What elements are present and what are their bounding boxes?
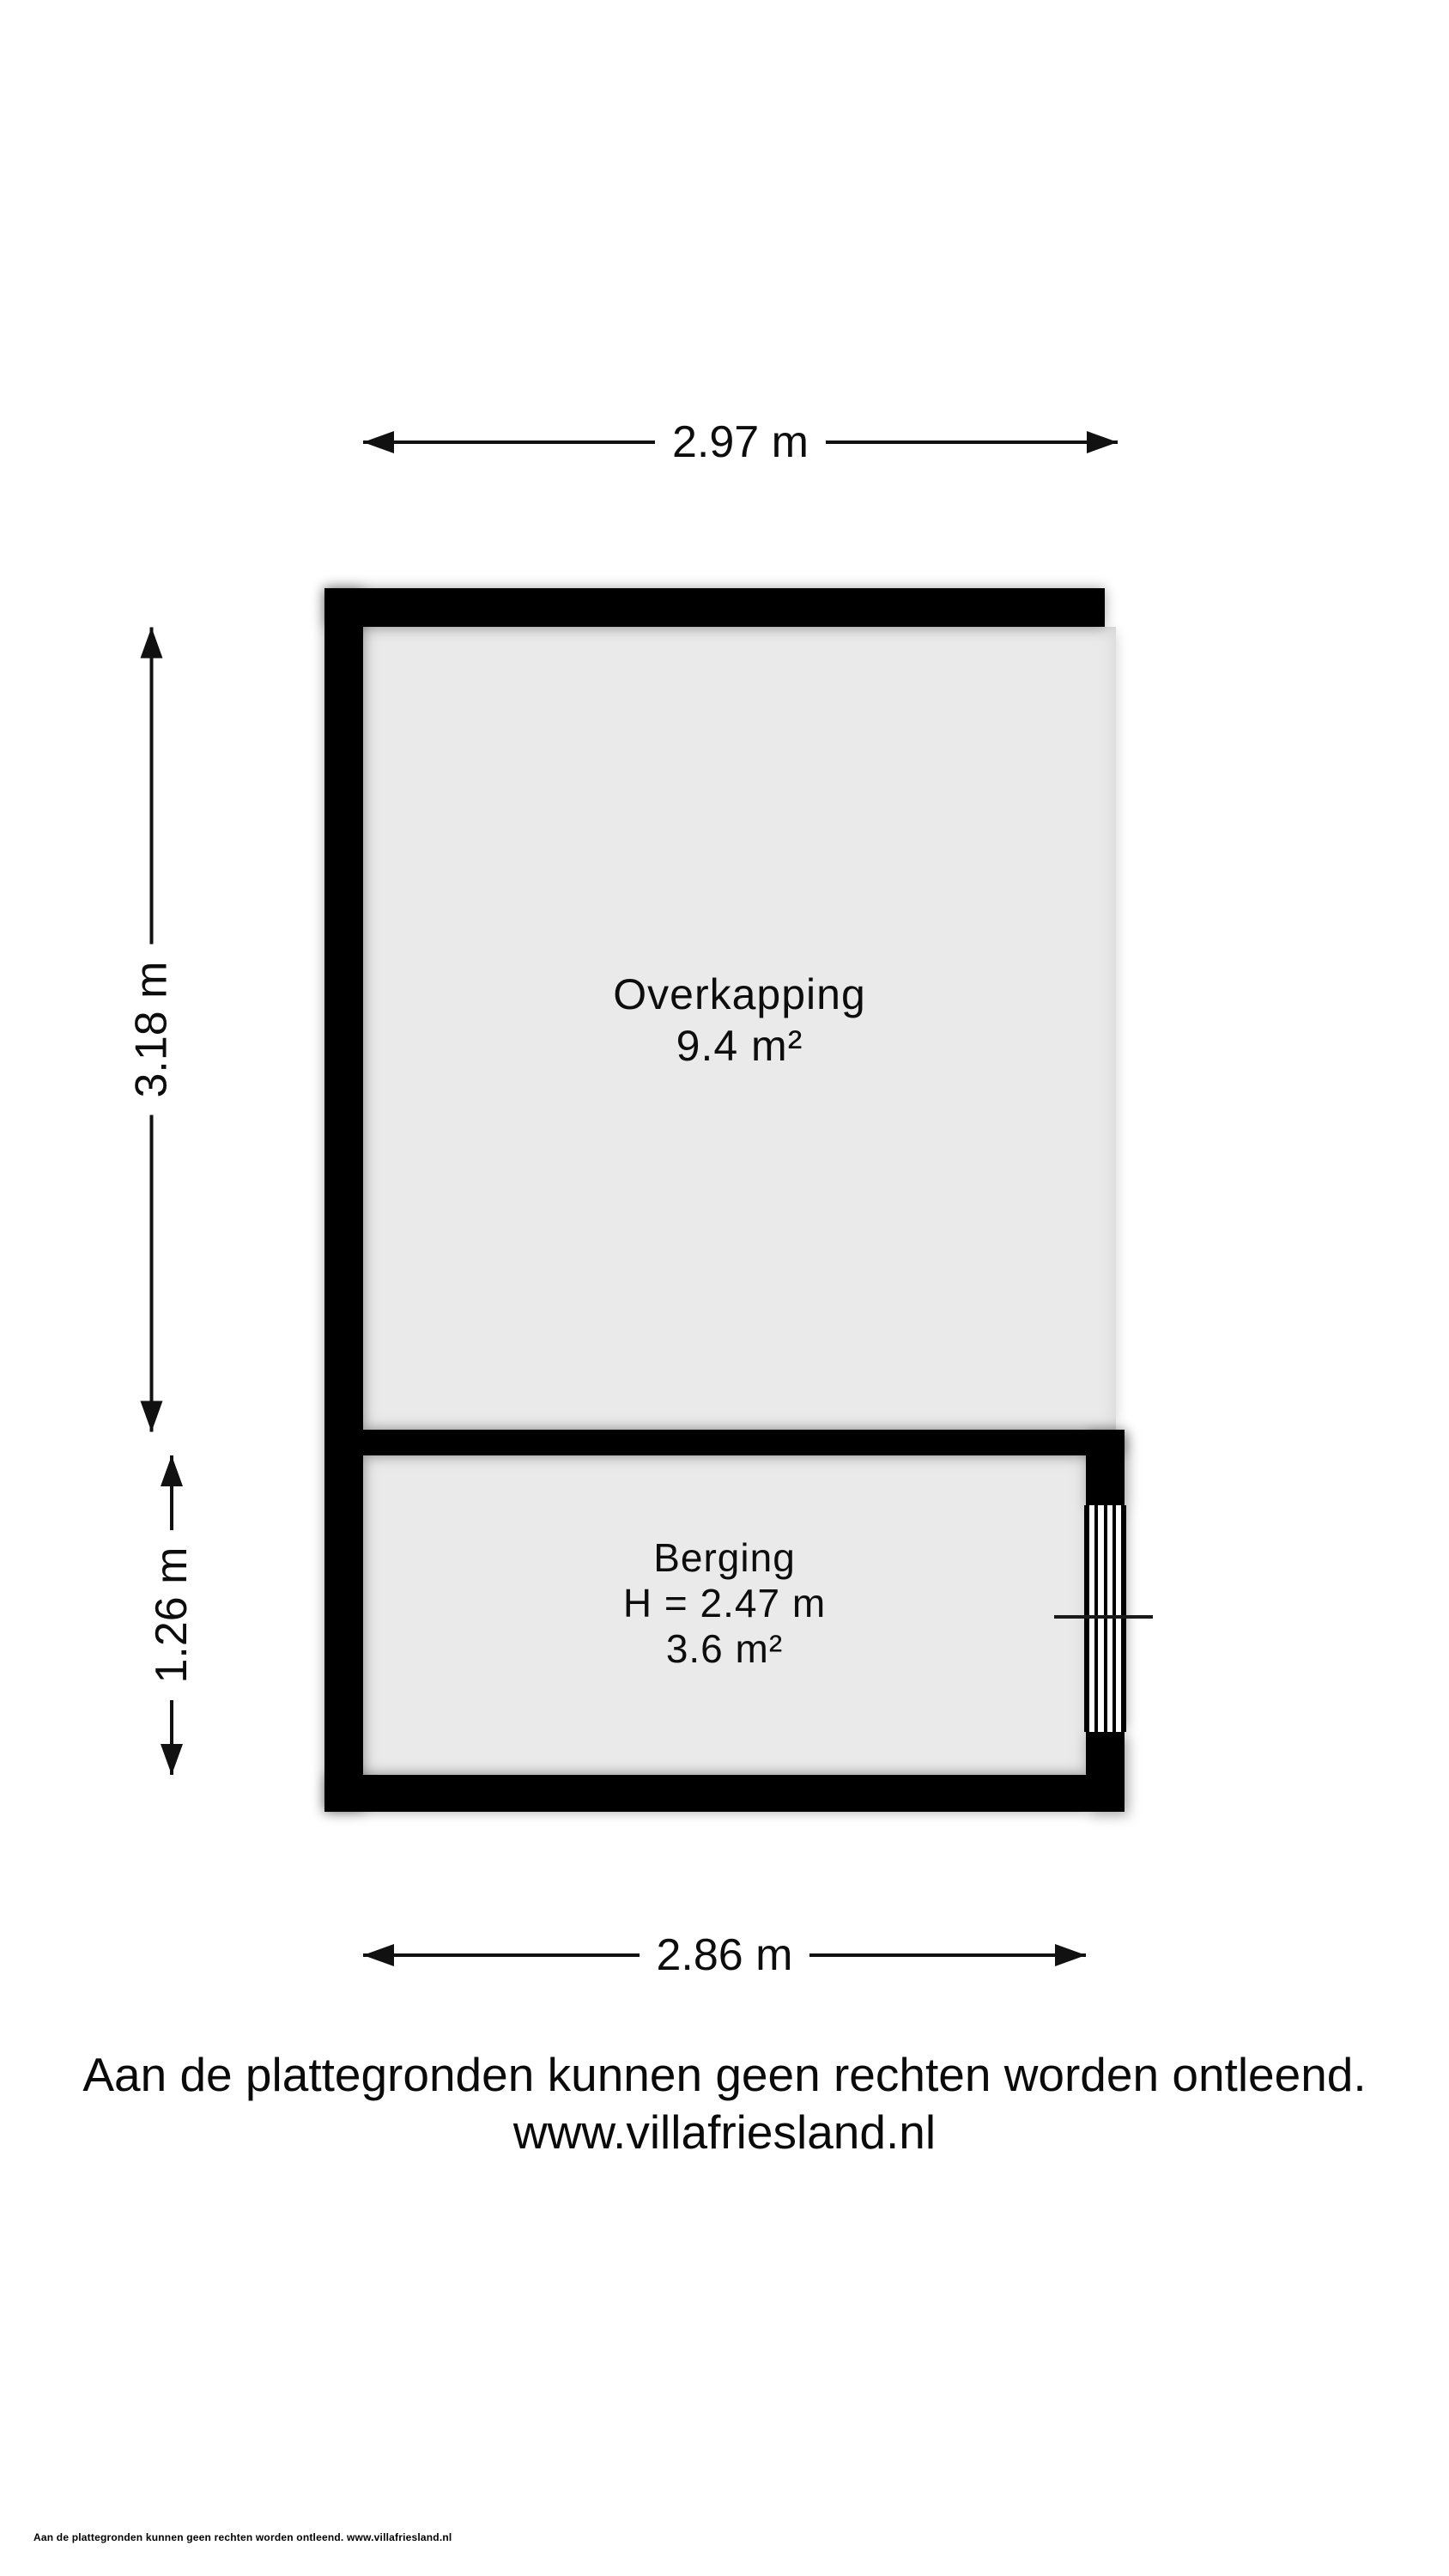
room-berging-label: Berging H = 2.47 m 3.6 m² [363,1535,1086,1672]
wall-left [324,588,363,1812]
dimension-left-upper-height: 3.18 m [130,627,172,1431]
floorplan-page: 2.97 m 3.18 m 1.26 m Overkapping 9.4 m² … [0,0,1449,2576]
room-name: Berging [363,1535,1086,1581]
disclaimer-line2: www.villafriesland.nl [0,2104,1449,2161]
wall-divider-corner [1086,1430,1125,1505]
dimension-top-width: 2.97 m [363,422,1118,463]
dimension-left-lower-label: 1.26 m [146,1530,197,1701]
disclaimer-line1: Aan de plattegronden kunnen geen rechten… [0,2046,1449,2104]
room-area: 3.6 m² [363,1626,1086,1672]
room-overkapping-label: Overkapping 9.4 m² [363,969,1116,1072]
arrow-left-icon [363,1944,394,1966]
disclaimer: Aan de plattegronden kunnen geen rechten… [0,2046,1449,2161]
dimension-top-label: 2.97 m [655,416,826,468]
arrow-up-icon [140,627,162,658]
wall-divider [363,1430,1125,1455]
arrow-up-icon [161,1455,183,1486]
arrow-down-icon [140,1400,162,1431]
window-pane-line [1113,1505,1116,1732]
window [1084,1505,1126,1732]
dimension-left-upper-label: 3.18 m [125,944,177,1115]
arrow-left-icon [363,431,394,453]
window-pane-line [1104,1505,1107,1732]
room-name: Overkapping [363,969,1116,1020]
arrow-down-icon [161,1744,183,1775]
arrow-right-icon [1055,1944,1086,1966]
room-ceiling-height: H = 2.47 m [363,1581,1086,1626]
wall-bottom-corner [1086,1732,1125,1812]
wall-top [324,588,1105,627]
dimension-bottom-width: 2.86 m [363,1935,1086,1976]
room-area: 9.4 m² [363,1020,1116,1072]
dimension-left-lower-height: 1.26 m [151,1455,192,1775]
window-pane-line [1094,1505,1098,1732]
window-pane-line [1121,1505,1126,1732]
footer-watermark: Aan de plattegronden kunnen geen rechten… [33,2531,452,2543]
wall-bottom [324,1775,1086,1812]
arrow-right-icon [1087,431,1118,453]
dimension-bottom-label: 2.86 m [640,1929,810,1981]
